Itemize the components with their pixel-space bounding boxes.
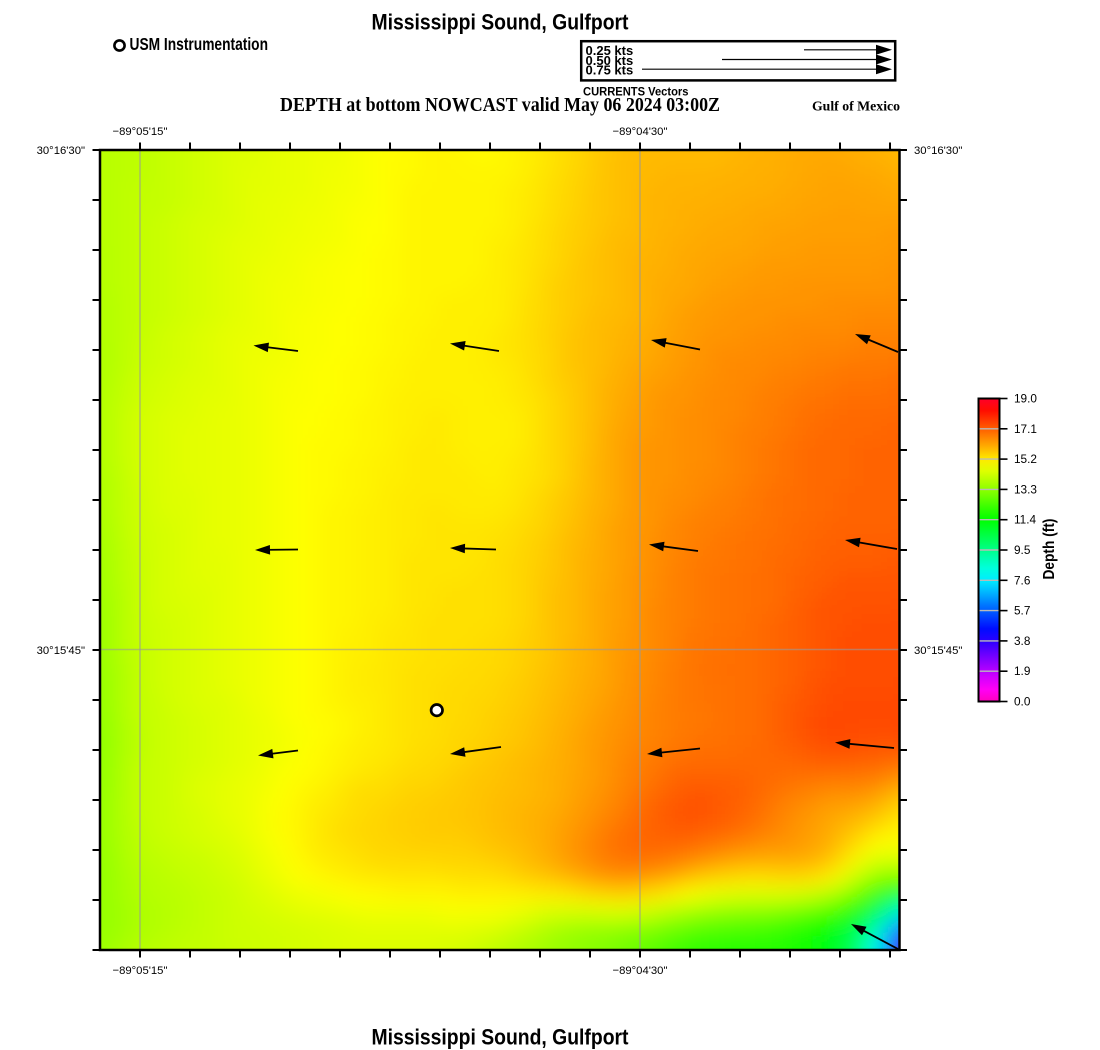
svg-text:30°15'45": 30°15'45"	[914, 645, 962, 657]
svg-text:−89°04'30": −89°04'30"	[613, 126, 668, 138]
svg-text:19.0: 19.0	[1014, 392, 1037, 406]
svg-text:7.6: 7.6	[1014, 573, 1031, 587]
svg-text:1.9: 1.9	[1014, 664, 1030, 678]
svg-text:0.0: 0.0	[1014, 695, 1031, 709]
svg-text:Gulf of Mexico: Gulf of Mexico	[812, 99, 900, 114]
svg-text:13.3: 13.3	[1014, 482, 1037, 496]
svg-text:−89°05'15": −89°05'15"	[113, 126, 168, 138]
svg-text:5.7: 5.7	[1014, 604, 1030, 618]
svg-text:USM Instrumentation: USM Instrumentation	[130, 34, 269, 54]
svg-text:15.2: 15.2	[1014, 452, 1037, 466]
svg-text:11.4: 11.4	[1014, 513, 1037, 527]
svg-text:30°16'30": 30°16'30"	[37, 145, 85, 157]
svg-text:Mississippi Sound, Gulfport: Mississippi Sound, Gulfport	[372, 1025, 630, 1050]
svg-text:Mississippi Sound, Gulfport: Mississippi Sound, Gulfport	[372, 10, 630, 35]
svg-text:3.8: 3.8	[1014, 634, 1031, 648]
svg-text:30°15'45": 30°15'45"	[37, 645, 85, 657]
svg-text:30°16'30": 30°16'30"	[914, 145, 962, 157]
svg-text:0.75 kts: 0.75 kts	[586, 63, 634, 78]
svg-text:17.1: 17.1	[1014, 422, 1037, 436]
svg-text:Depth (ft): Depth (ft)	[1041, 519, 1058, 580]
svg-text:−89°05'15": −89°05'15"	[113, 965, 168, 977]
svg-text:9.5: 9.5	[1014, 543, 1031, 557]
svg-text:−89°04'30": −89°04'30"	[613, 965, 668, 977]
svg-text:DEPTH at bottom NOWCAST valid: DEPTH at bottom NOWCAST valid May 06 202…	[280, 94, 720, 116]
